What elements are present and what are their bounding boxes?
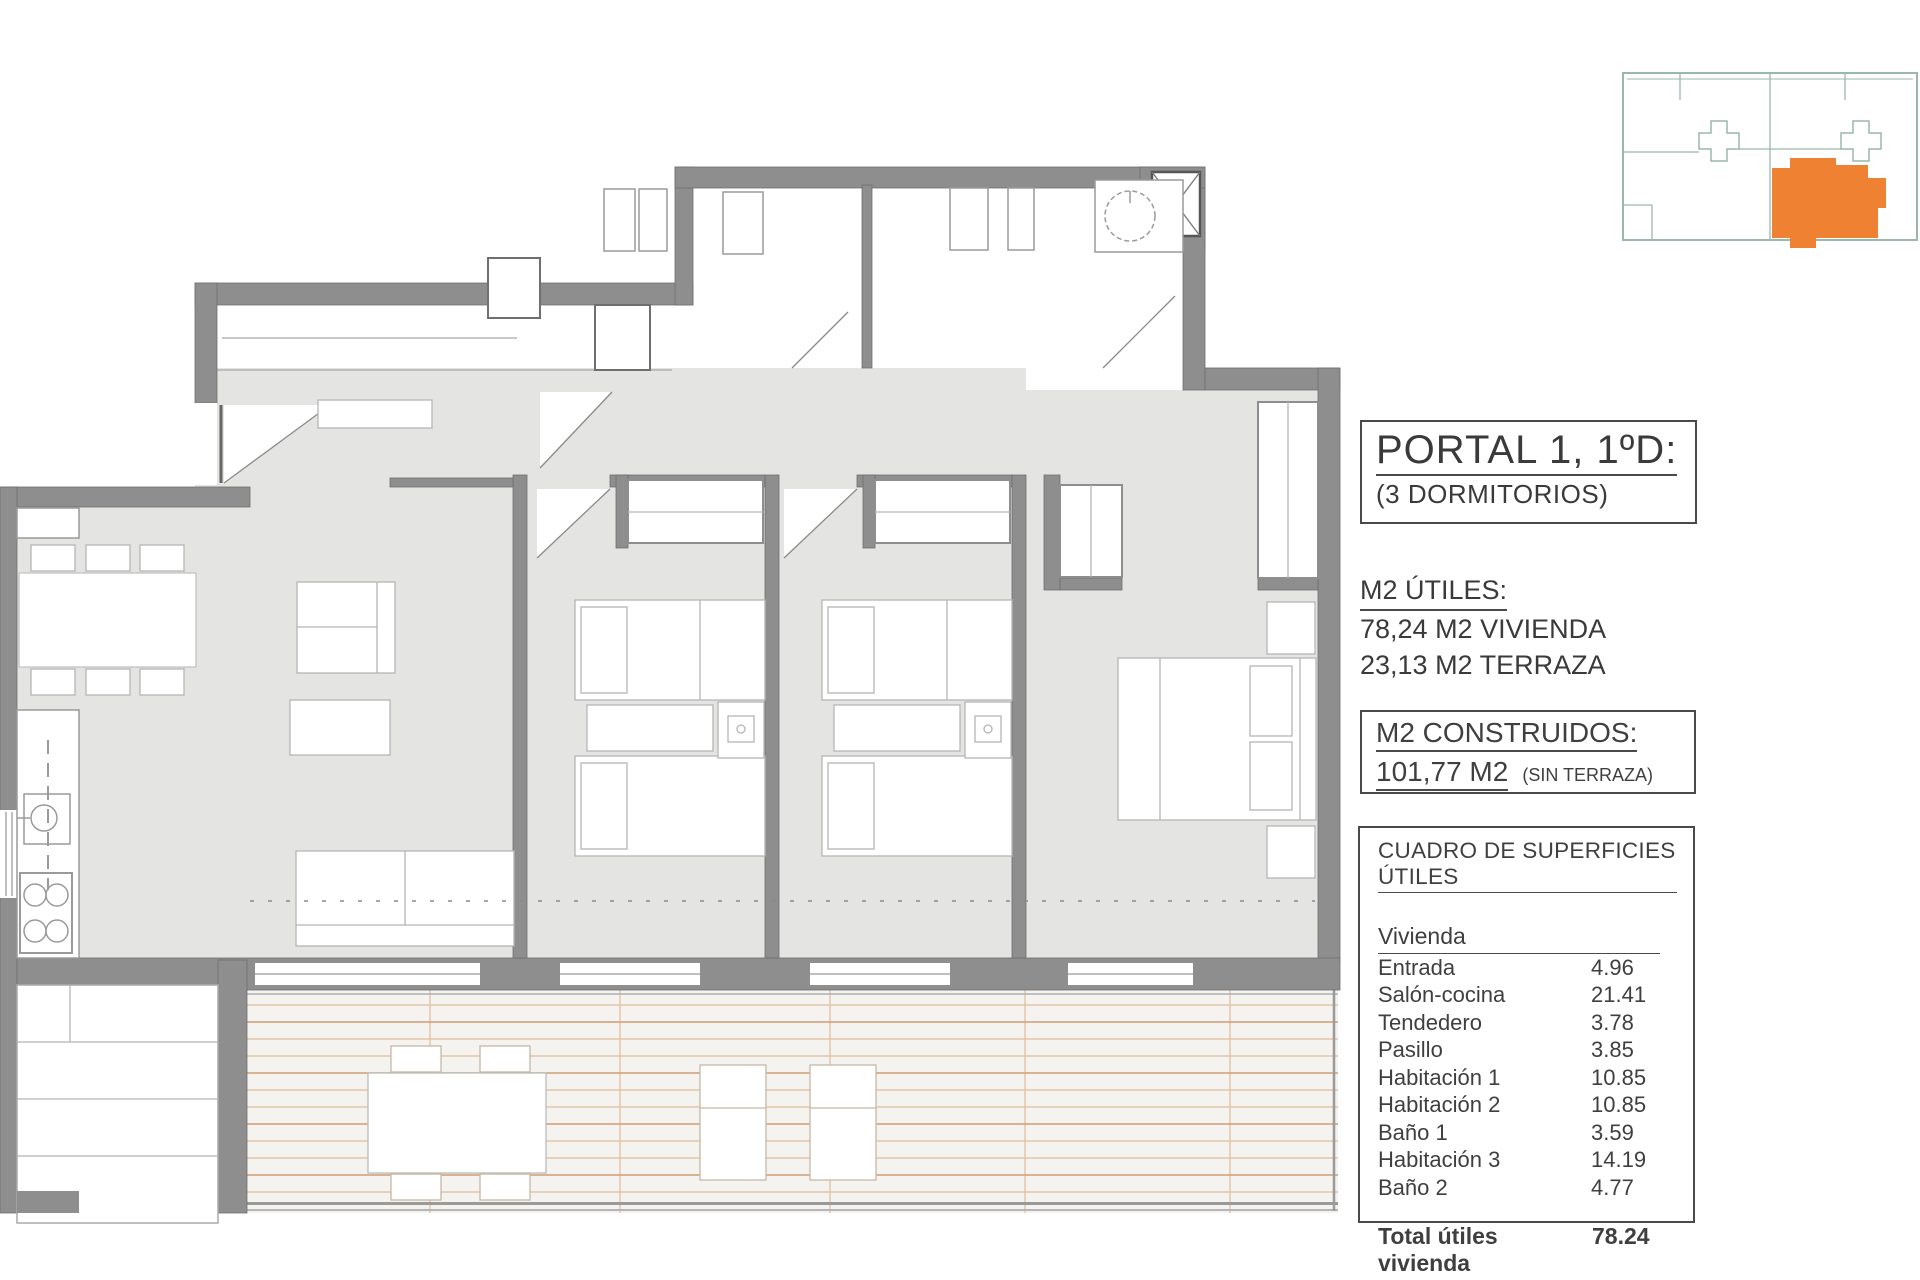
key-map [1623, 73, 1917, 248]
dining-set [19, 545, 196, 695]
storage-area [17, 985, 218, 1223]
upper-rooms [217, 186, 1183, 368]
hall-cabinet [595, 305, 650, 370]
floorplan-drawing [0, 0, 1920, 1280]
column-box [488, 258, 540, 318]
floorplan-sheet: PORTAL 1, 1ºD: (3 DORMITORIOS) M2 ÚTILES… [0, 0, 1920, 1280]
